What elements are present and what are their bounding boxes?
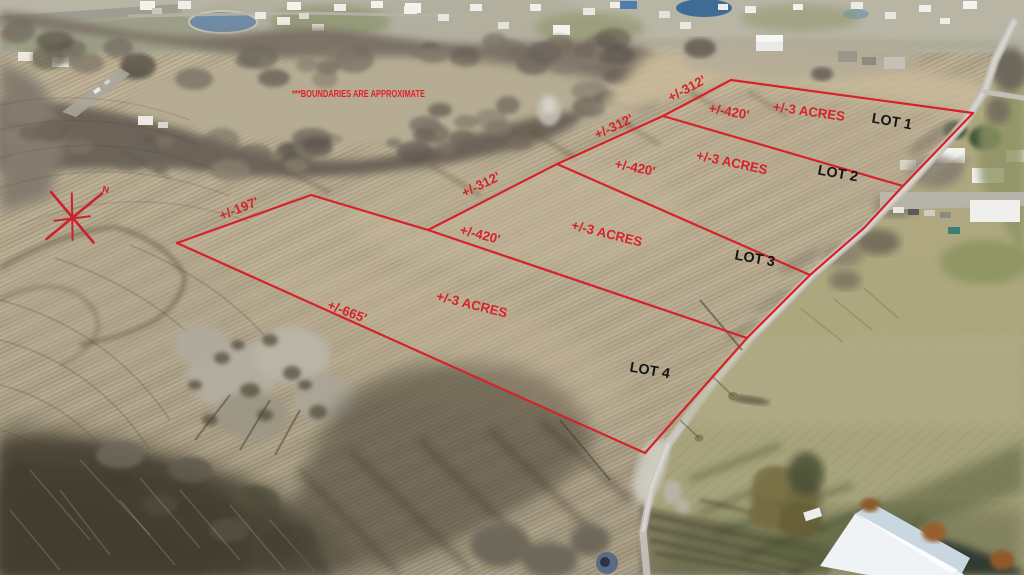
svg-text:***BOUNDARIES ARE APPROXIMATE: ***BOUNDARIES ARE APPROXIMATE	[292, 89, 425, 100]
